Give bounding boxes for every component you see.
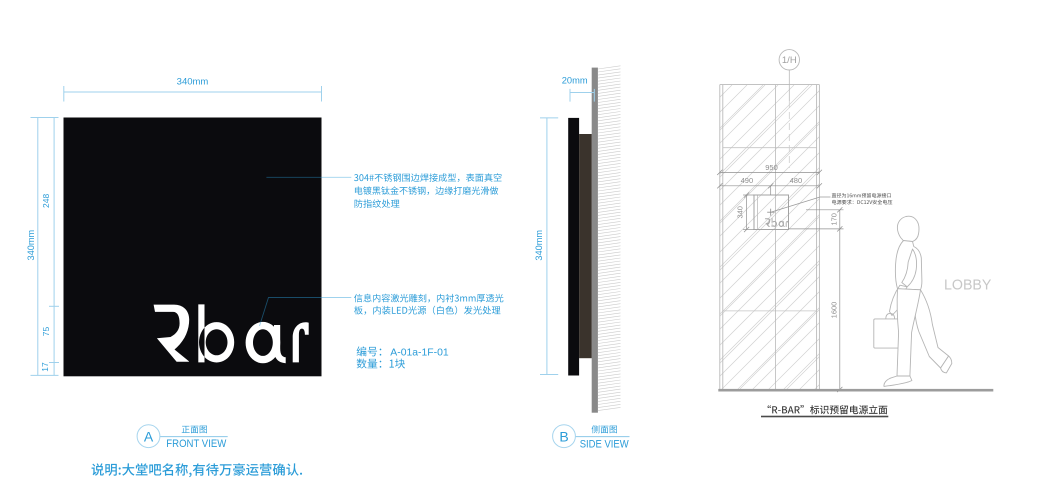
svg-text:1600: 1600 bbox=[829, 302, 838, 319]
svg-text:A: A bbox=[144, 428, 154, 444]
svg-text:75: 75 bbox=[41, 327, 51, 337]
svg-text:340: 340 bbox=[736, 206, 745, 219]
svg-text:170: 170 bbox=[829, 213, 838, 226]
svg-text:FRONT VIEW: FRONT VIEW bbox=[166, 438, 227, 450]
svg-text:950: 950 bbox=[765, 163, 778, 172]
svg-text:20mm: 20mm bbox=[562, 76, 588, 86]
svg-text:480: 480 bbox=[790, 176, 803, 185]
svg-text:LOBBY: LOBBY bbox=[944, 276, 991, 293]
svg-text:1/H: 1/H bbox=[782, 55, 797, 66]
svg-text:340mm: 340mm bbox=[534, 230, 544, 261]
svg-text:17: 17 bbox=[40, 362, 50, 372]
svg-text:A-01a-1F-01: A-01a-1F-01 bbox=[390, 348, 449, 359]
svg-text:B: B bbox=[559, 428, 568, 444]
svg-text:340mm: 340mm bbox=[26, 230, 36, 261]
svg-text:340mm: 340mm bbox=[177, 76, 209, 87]
svg-text:490: 490 bbox=[741, 176, 754, 185]
svg-text:248: 248 bbox=[41, 194, 51, 208]
svg-text:SIDE VIEW: SIDE VIEW bbox=[580, 439, 630, 451]
